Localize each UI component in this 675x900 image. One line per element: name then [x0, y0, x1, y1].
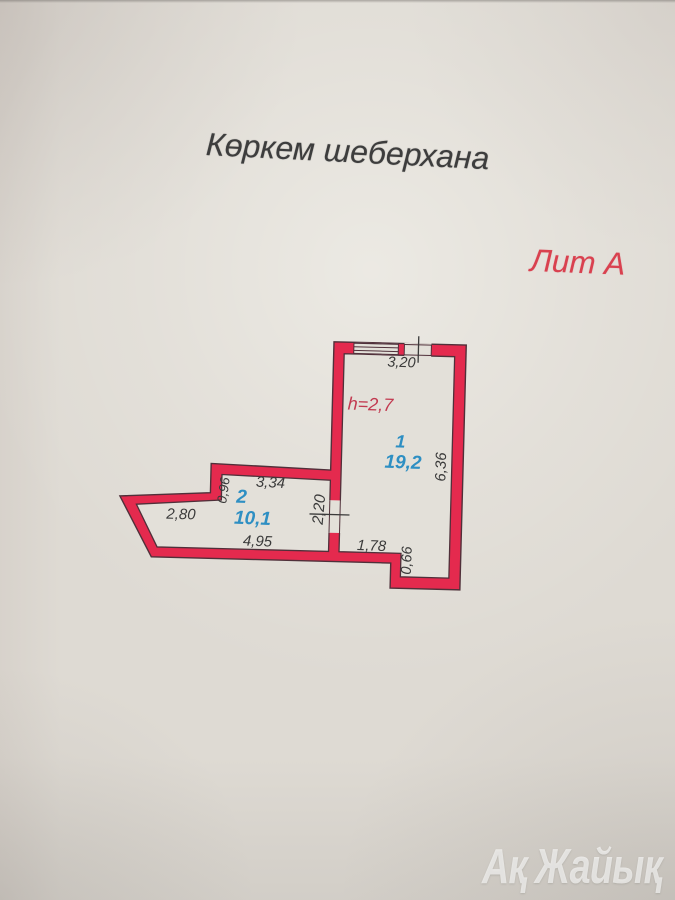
- svg-text:2,20: 2,20: [310, 493, 330, 526]
- svg-text:3,20: 3,20: [387, 355, 416, 372]
- svg-text:19,2: 19,2: [384, 452, 422, 474]
- svg-text:h=2,7: h=2,7: [347, 394, 394, 416]
- svg-text:6,36: 6,36: [432, 451, 450, 481]
- svg-text:3,34: 3,34: [256, 474, 286, 492]
- svg-text:1,78: 1,78: [357, 537, 387, 555]
- svg-text:10,1: 10,1: [234, 508, 272, 530]
- svg-text:2: 2: [235, 487, 248, 508]
- svg-text:2,80: 2,80: [165, 506, 196, 524]
- svg-text:4,95: 4,95: [243, 532, 274, 550]
- svg-text:1: 1: [395, 431, 406, 451]
- svg-text:0,66: 0,66: [399, 545, 416, 575]
